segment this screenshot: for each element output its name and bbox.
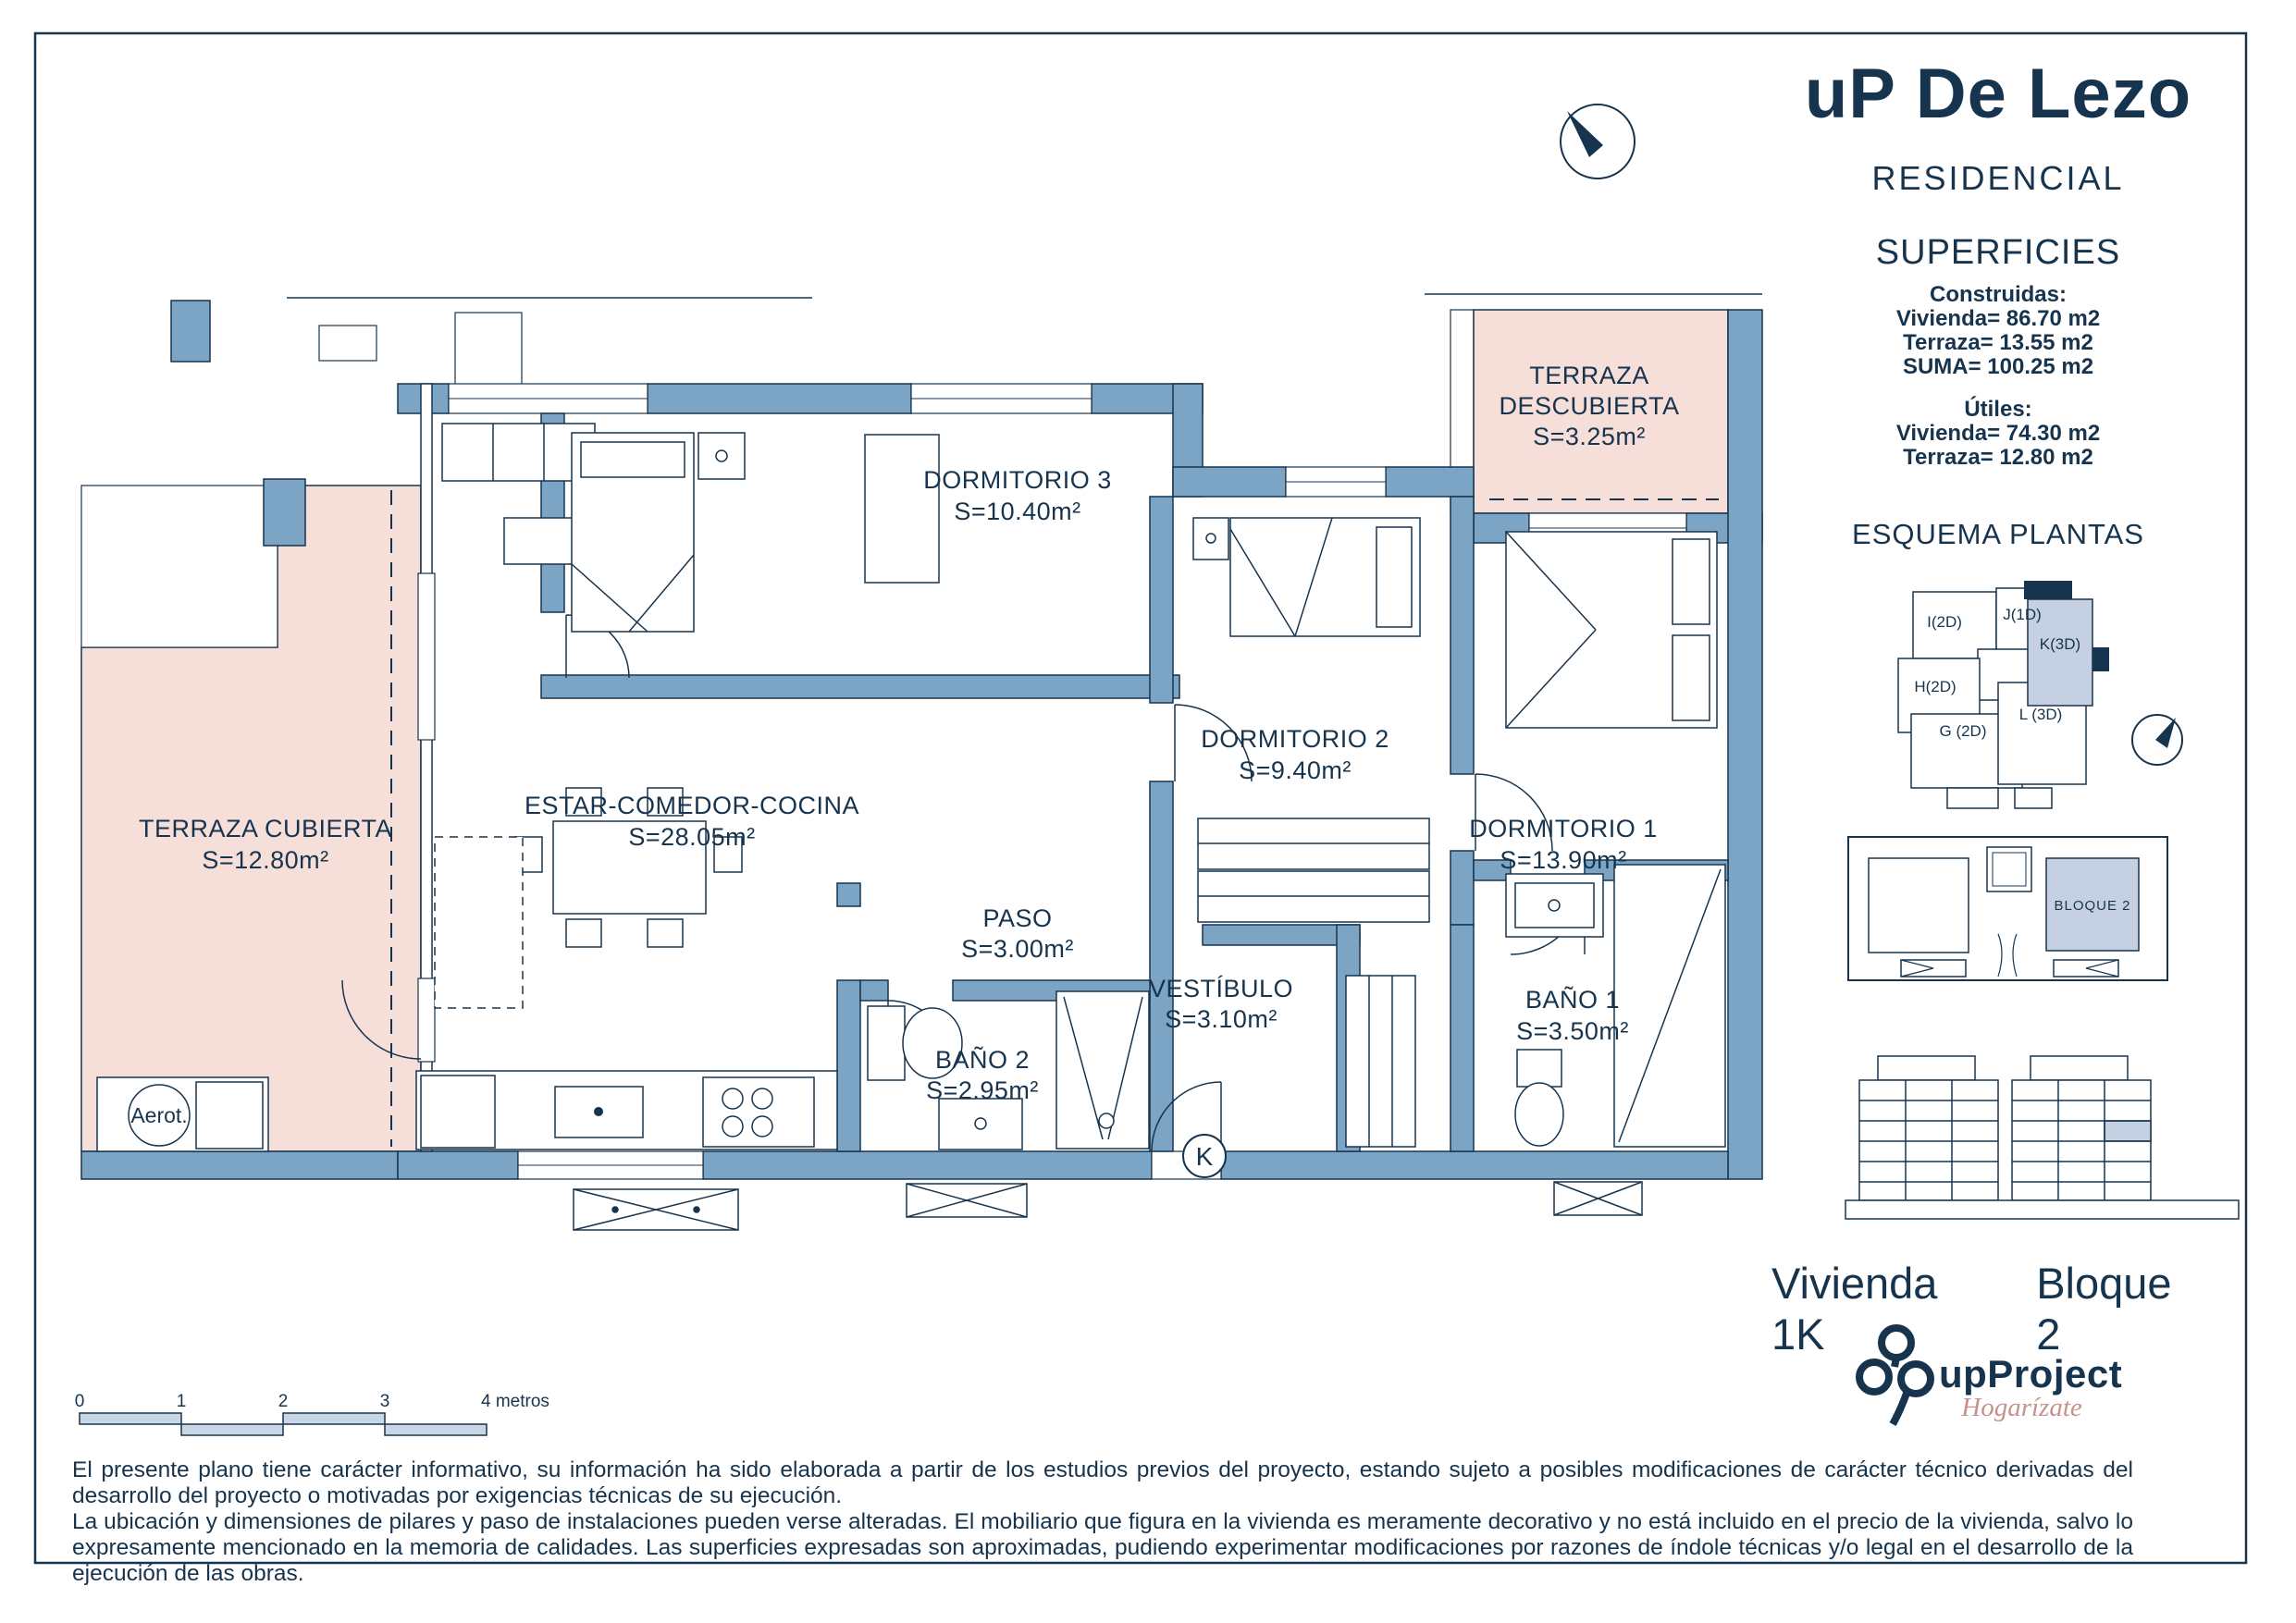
site-plan: BLOQUE 2 (1848, 837, 2167, 980)
entry-mats (574, 1182, 1642, 1230)
bloque2-label: BLOQUE 2 (2054, 898, 2130, 914)
unit-key-label: K (1196, 1142, 1214, 1171)
brand-name: upProject (1939, 1352, 2122, 1396)
room-label: TERRAZA (1529, 362, 1649, 389)
scale-tick: 0 (75, 1392, 85, 1411)
superficies-heading: SUPERFICIES (1795, 233, 2202, 273)
scale-tick: 2 (278, 1392, 289, 1411)
esquema-unit-label: J(1D) (2003, 606, 2042, 623)
terrace-door-gap (418, 978, 435, 1062)
planter (455, 313, 522, 385)
brand-tagline: Hogarízate (1941, 1393, 2103, 1423)
elevation-unit-highlight (2105, 1121, 2151, 1141)
floorplan-sheet: { "header": { "title": "uP De Lezo", "su… (0, 0, 2296, 1623)
compass-north-icon (1561, 105, 1635, 178)
bloque-label: Bloque 2 (2036, 1258, 2197, 1359)
room-area: S=3.50m² (1516, 1017, 1629, 1045)
room-label: PASO (982, 904, 1052, 932)
unit-identifier: Vivienda 1K Bloque 2 (1771, 1258, 2197, 1359)
construidas-line: SUMA= 100.25 m2 (1795, 355, 2202, 379)
scale-bar: 0 1 2 3 4 metros (75, 1392, 549, 1435)
room-label: TERRAZA CUBIERTA (139, 815, 392, 842)
room-label: DORMITORIO 2 (1201, 725, 1389, 753)
esquema-unit-label: G (2D) (1940, 722, 1987, 740)
construidas-label: Construidas: (1795, 283, 2202, 307)
esquema-minimap: I(2D) J(1D) K(3D) H(2D) G (2D) L (3D) (1898, 581, 2182, 808)
room-area: S=3.00m² (961, 935, 1074, 963)
esquema-unit-label: I(2D) (1927, 613, 1962, 631)
esquema-unit-label: L (3D) (2019, 706, 2063, 723)
room-area: S=9.40m² (1239, 756, 1352, 784)
terraza-cubierta-zone (81, 301, 421, 1151)
scale-tick: 1 (177, 1392, 187, 1411)
utiles-line: Terraza= 12.80 m2 (1795, 446, 2202, 470)
room-area: S=2.95m² (926, 1076, 1039, 1104)
planter (319, 326, 376, 361)
room-label: DORMITORIO 1 (1469, 815, 1658, 842)
room-area: S=3.10m² (1165, 1005, 1278, 1033)
disclaimer-paragraph: La ubicación y dimensiones de pilares y … (72, 1509, 2133, 1587)
construidas-line: Terraza= 13.55 m2 (1795, 331, 2202, 355)
construidas-line: Vivienda= 86.70 m2 (1795, 307, 2202, 331)
room-area: S=28.05m² (628, 823, 755, 851)
room-label: BAÑO 2 (935, 1045, 1030, 1074)
scale-tick: 4 metros (481, 1392, 549, 1411)
terrace-sliding-window (418, 573, 435, 740)
esquema-heading: ESQUEMA PLANTAS (1795, 518, 2202, 551)
room-label: BAÑO 1 (1525, 985, 1620, 1014)
room-label: VESTÍBULO (1149, 975, 1293, 1002)
utiles-label: Útiles: (1795, 398, 2202, 422)
project-title: uP De Lezo (1795, 54, 2202, 134)
compass-small-icon (2132, 715, 2182, 765)
elevations (1845, 1056, 2239, 1219)
room-label: DORMITORIO 3 (923, 466, 1112, 494)
disclaimer-paragraph: El presente plano tiene carácter informa… (72, 1457, 2133, 1509)
project-subtitle: RESIDENCIAL (1795, 159, 2202, 198)
disclaimer: El presente plano tiene carácter informa… (72, 1457, 2133, 1587)
aerot-label: Aerot. (130, 1103, 187, 1127)
room-area: S=10.40m² (954, 498, 1080, 525)
room-label: ESTAR-COMEDOR-COCINA (525, 792, 859, 819)
room-area: S=13.90m² (1500, 846, 1626, 874)
esquema-unit-label: K(3D) (2040, 635, 2080, 653)
room-area: S=12.80m² (202, 846, 328, 874)
esquema-unit-label: H(2D) (1914, 678, 1956, 695)
vivienda-label: Vivienda 1K (1771, 1258, 1988, 1359)
scale-tick: 3 (380, 1392, 390, 1411)
superficies-construidas: Construidas: Vivienda= 86.70 m2 Terraza=… (1795, 283, 2202, 379)
utiles-line: Vivienda= 74.30 m2 (1795, 422, 2202, 446)
room-area: S=3.25m² (1533, 423, 1646, 450)
room-label: DESCUBIERTA (1499, 392, 1679, 420)
superficies-utiles: Útiles: Vivienda= 74.30 m2 Terraza= 12.8… (1795, 398, 2202, 470)
